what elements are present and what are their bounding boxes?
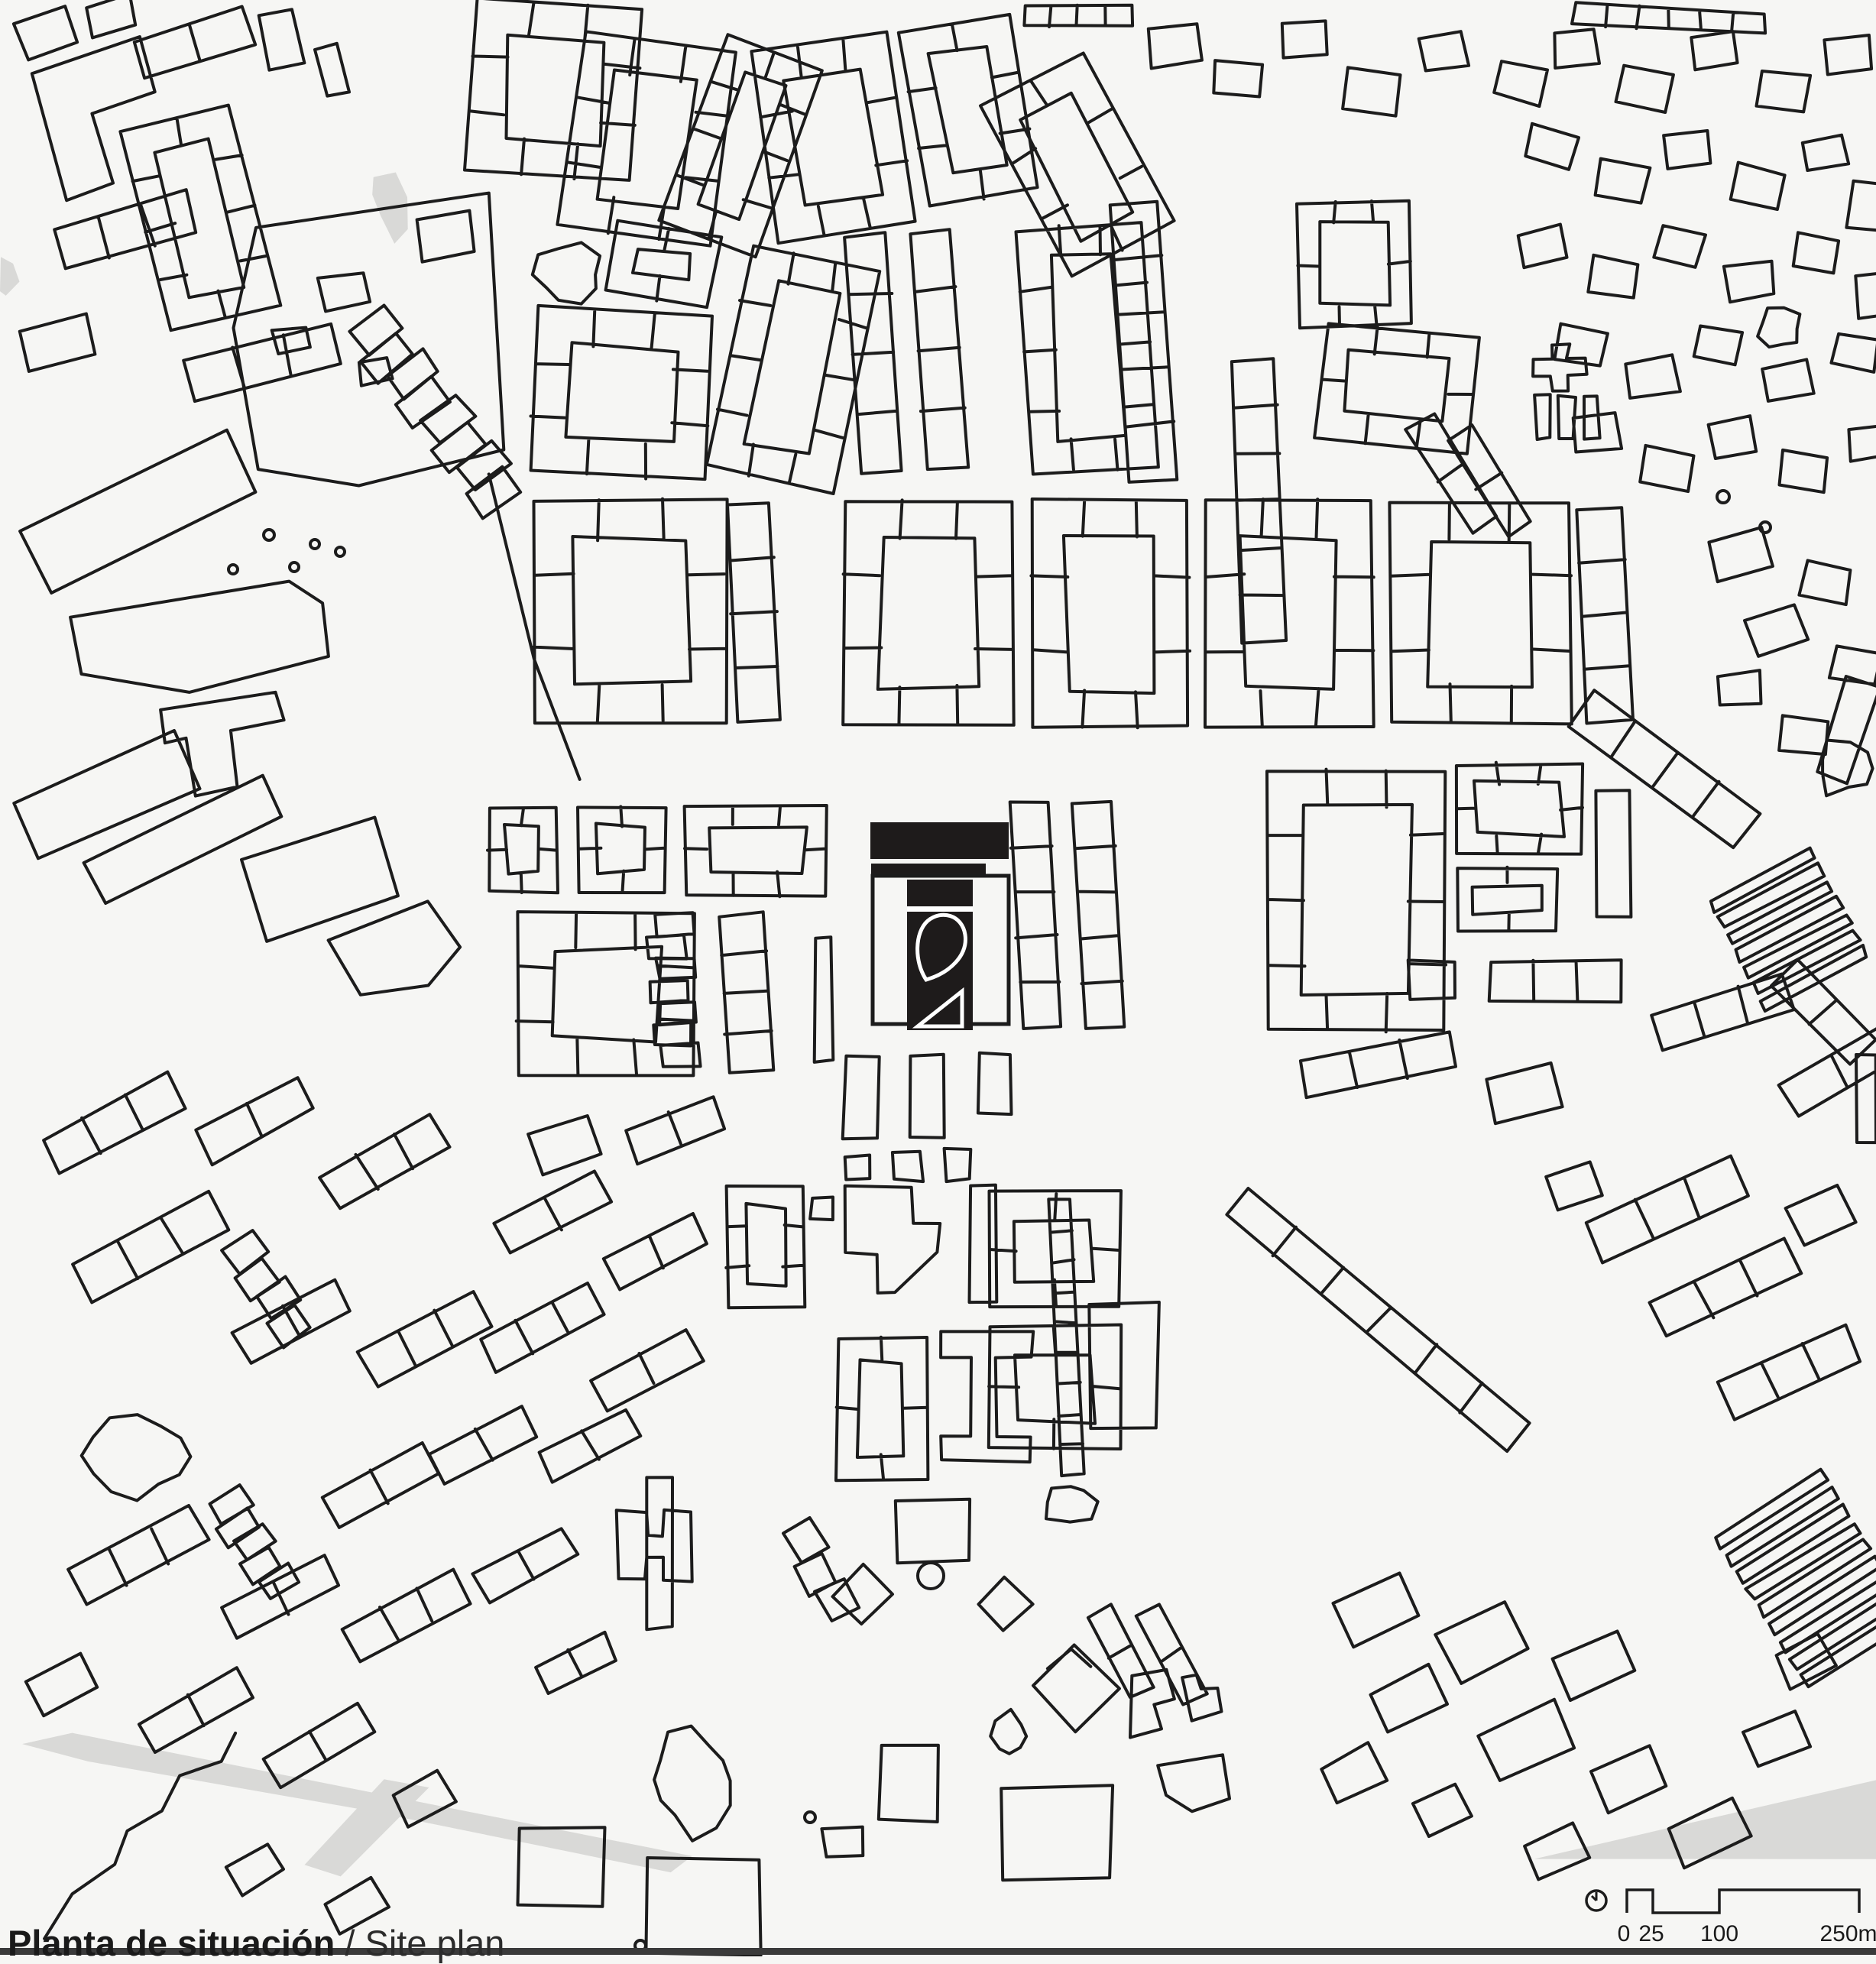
small-round-building: [918, 1563, 944, 1589]
scale-label-250m: 250m: [1819, 1921, 1876, 1946]
featured-north-wing: [870, 822, 1009, 859]
scale-label-100: 100: [1700, 1921, 1738, 1946]
site-plan-page: { "caption": { "title_bold": "Planta de …: [0, 0, 1876, 1956]
small-round-building: [805, 1812, 815, 1823]
featured-building: [870, 822, 1009, 1030]
small-round-building: [264, 530, 274, 540]
scale-label-25: 25: [1638, 1921, 1664, 1946]
scale-bar: 0 25 100 250m: [1618, 1890, 1876, 1946]
small-round-building: [228, 565, 238, 574]
scale-label-0: 0: [1618, 1921, 1631, 1946]
small-round-building: [290, 562, 299, 572]
caption-title-es: Planta de situación: [8, 1923, 335, 1963]
small-round-building: [310, 540, 319, 549]
plan-caption: Planta de situación / Site plan: [8, 1922, 504, 1964]
north-arrow-hand: [1592, 1892, 1596, 1901]
site-plan-map: 0 25 100 250m: [0, 0, 1876, 1956]
north-arrow-icon: [1586, 1891, 1606, 1911]
small-round-building: [335, 547, 345, 556]
scale-bar-line: [1627, 1890, 1859, 1913]
featured-roof-joint: [907, 906, 973, 912]
caption-title-en: / Site plan: [335, 1923, 504, 1963]
small-round-building: [1717, 491, 1729, 503]
